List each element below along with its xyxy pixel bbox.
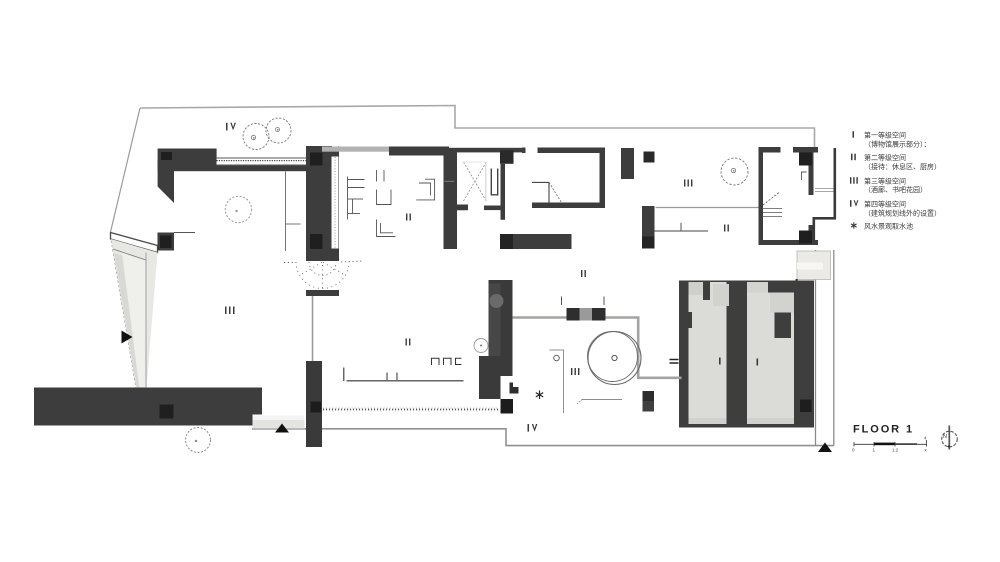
svg-text:（接待：休息区、厨房）: （接待：休息区、厨房） bbox=[864, 162, 941, 171]
svg-text:FLOOR 1: FLOOR 1 bbox=[853, 424, 914, 436]
svg-text:1:2: 1:2 bbox=[892, 448, 899, 453]
svg-text:第三等级空间: 第三等级空间 bbox=[864, 177, 906, 186]
svg-text:（建筑规划线外的设置）: （建筑规划线外的设置） bbox=[864, 209, 941, 218]
svg-text:（酒廊、书吧花园）: （酒廊、书吧花园） bbox=[864, 185, 927, 194]
svg-text:第二等级空间: 第二等级空间 bbox=[864, 153, 906, 162]
svg-text:风水景观取水池: 风水景观取水池 bbox=[864, 222, 913, 231]
svg-text:（博物馆展示部分）：: （博物馆展示部分）： bbox=[864, 140, 931, 149]
svg-text:N: N bbox=[943, 434, 947, 440]
svg-text:第四等级空间: 第四等级空间 bbox=[864, 200, 906, 209]
svg-text:第一等级空间: 第一等级空间 bbox=[864, 131, 906, 140]
